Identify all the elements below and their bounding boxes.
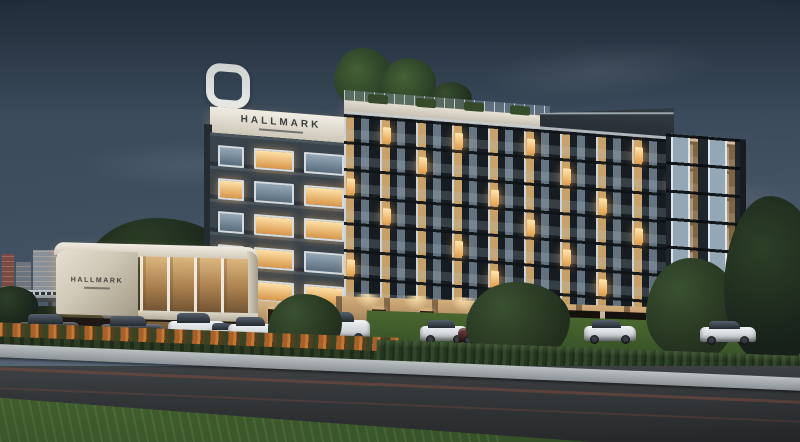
facade-window bbox=[218, 178, 244, 201]
facade-window bbox=[254, 181, 294, 205]
entrance-sign-text: HALLMARK bbox=[71, 276, 123, 285]
facade-window bbox=[304, 185, 344, 209]
lit-window bbox=[635, 228, 643, 244]
lit-window bbox=[527, 138, 535, 154]
roof-hedge-planter bbox=[510, 105, 530, 116]
parked-car bbox=[700, 327, 756, 342]
lit-window bbox=[635, 147, 643, 163]
lit-window bbox=[563, 168, 571, 184]
facade-window bbox=[218, 211, 244, 234]
downlight-glow bbox=[402, 295, 430, 311]
facade-window bbox=[304, 251, 344, 275]
lit-window bbox=[455, 133, 463, 149]
lit-window bbox=[347, 178, 355, 194]
lit-window bbox=[383, 208, 391, 224]
parked-car bbox=[584, 326, 636, 341]
facade-window bbox=[254, 214, 294, 238]
facade-window bbox=[254, 148, 294, 172]
lit-window bbox=[599, 279, 607, 295]
roof-hedge-planter bbox=[416, 98, 436, 109]
entrance-sign-wall: HALLMARK bbox=[56, 250, 138, 316]
facade-window bbox=[254, 247, 294, 271]
rooftop-ornament-loop bbox=[206, 62, 250, 109]
lit-window bbox=[419, 157, 427, 173]
scene: HALLMARK bbox=[0, 0, 800, 442]
lit-window bbox=[347, 259, 355, 275]
roof-hedge-planter bbox=[464, 101, 484, 112]
pavilion-glass-lounge bbox=[140, 256, 248, 315]
entrance-sign-tagline bbox=[84, 287, 110, 290]
facade-window bbox=[218, 145, 244, 168]
rooftop-sign-text: HALLMARK bbox=[241, 115, 322, 131]
facade-window bbox=[304, 218, 344, 242]
lit-window bbox=[599, 198, 607, 214]
lit-window bbox=[383, 127, 391, 143]
lit-window bbox=[491, 190, 499, 206]
lit-window bbox=[455, 241, 463, 257]
roof-hedge-planter bbox=[368, 94, 388, 105]
lit-window bbox=[563, 249, 571, 265]
downlight-glow bbox=[354, 294, 382, 310]
facade-window bbox=[304, 152, 344, 176]
lit-window bbox=[527, 219, 535, 235]
